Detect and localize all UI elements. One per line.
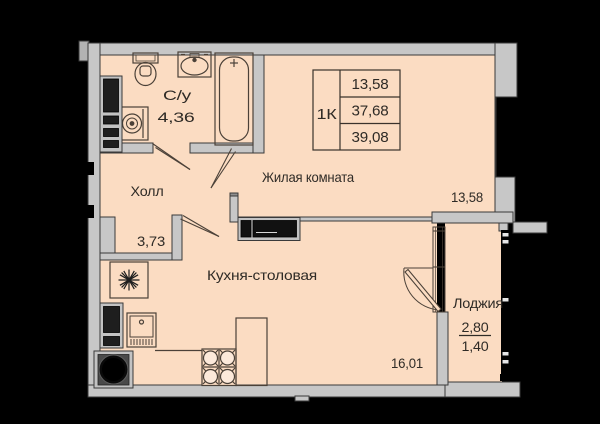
washing-machine-icon xyxy=(120,107,148,140)
wall-bath-right xyxy=(253,55,264,153)
kitchen-name: Кухня-столовая xyxy=(207,267,317,283)
wall-hall-kitchen xyxy=(172,215,182,260)
table-total-area: 39,08 xyxy=(352,129,389,146)
wall-left xyxy=(88,43,100,397)
wall-living-bottom xyxy=(432,212,513,223)
loggia-area-total: 2,80 xyxy=(462,319,489,335)
wall-bottom xyxy=(88,385,445,397)
bathroom-name: С/у xyxy=(163,87,191,103)
kitchen-sink-counter xyxy=(238,218,300,241)
wall-stub-right xyxy=(513,222,547,233)
left-wall-notch-2 xyxy=(86,205,94,218)
hall-area: 3,73 xyxy=(137,233,165,249)
wall-bottom-step xyxy=(295,396,309,401)
apartment-type: 1К xyxy=(317,106,338,123)
stove-icon xyxy=(202,349,236,386)
wall-loggia-lower xyxy=(437,312,448,385)
corner-appliance-icon xyxy=(94,351,133,388)
table-area-wo-loggia: 37,68 xyxy=(352,103,389,120)
floor-plan: С/у 4,36 Холл 3,73 Жилая комната 13,58 К… xyxy=(0,0,600,424)
wall-loggia-bottom xyxy=(445,382,520,397)
table-room-area: 13,58 xyxy=(352,76,389,93)
left-wall-notch-1 xyxy=(86,162,94,175)
loggia-area-reduced: 1,40 xyxy=(462,338,489,354)
loggia-name: Лоджия xyxy=(453,295,503,311)
living-area: 13,58 xyxy=(451,189,483,205)
floor-plan-canvas: С/у 4,36 Холл 3,73 Жилая комната 13,58 К… xyxy=(0,0,600,424)
wall-post-living xyxy=(230,196,238,222)
riser-shaft-icon xyxy=(100,76,122,152)
kitchen-column-shaft xyxy=(100,303,123,348)
bathroom-area: 4,36 xyxy=(158,109,196,125)
glazing-end-post xyxy=(500,374,507,381)
hall-name: Холл xyxy=(131,183,164,199)
wall-right-upper xyxy=(495,43,517,97)
wall-hall-bottom xyxy=(100,253,182,260)
loggia-pier xyxy=(499,223,508,231)
living-name: Жилая комната xyxy=(262,169,354,185)
kitchen-area: 16,01 xyxy=(391,355,423,371)
